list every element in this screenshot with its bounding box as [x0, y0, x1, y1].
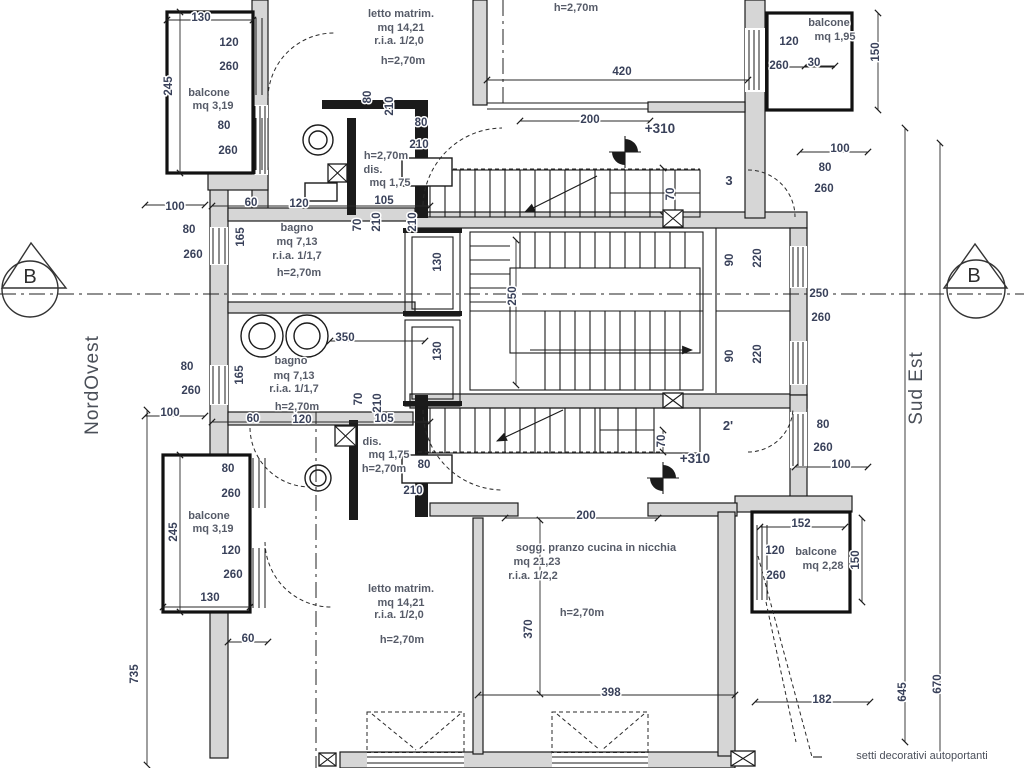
dimension-120: 120	[219, 37, 238, 49]
room-label-balcone-sud-est: mq 2,28	[803, 560, 844, 572]
dimension-420: 420	[612, 66, 631, 78]
room-label-letto-matrim-sud: mq 14,21	[377, 597, 424, 609]
dimension-80: 80	[817, 419, 830, 431]
dimension-260: 260	[223, 569, 242, 581]
floor-plan-drawing: letto matrim.mq 14,21r.i.a. 1/2,0h=2,70m…	[0, 0, 1024, 768]
dimension-260: 260	[221, 488, 240, 500]
paper-background	[0, 0, 1024, 768]
pillar-xbox	[328, 164, 347, 182]
dimension-250: 250	[507, 286, 519, 305]
dimension-260: 260	[813, 442, 832, 454]
dimension-210: 210	[407, 212, 419, 231]
room-label-dis-sud: h=2,70m	[362, 463, 407, 475]
dimension-80: 80	[222, 463, 235, 475]
window-gap	[745, 28, 765, 92]
dimension-120: 120	[221, 545, 240, 557]
dimension-260: 260	[811, 312, 830, 324]
room-label-bagno-nord: bagno	[281, 222, 314, 234]
dimension-100: 100	[830, 143, 849, 155]
room-label-balcone-nord-est: mq 1,95	[815, 31, 856, 43]
dimension-210: 210	[372, 393, 384, 412]
dimension-152: 152	[791, 518, 810, 530]
compass-label-sudest: Sud Est	[906, 351, 927, 425]
dimension-80: 80	[415, 117, 428, 129]
section-letter-b-left: B	[23, 266, 36, 288]
dimension-210: 210	[403, 485, 422, 497]
partition-note: setti decorativi autoportanti	[856, 750, 987, 762]
dimension-105: 105	[374, 195, 394, 207]
dimension-120: 120	[765, 545, 784, 557]
room-label-letto-matrim-nord: r.i.a. 1/2,0	[374, 35, 424, 47]
room-label-bagno-sud: bagno	[275, 355, 308, 367]
dimension-70: 70	[656, 435, 668, 448]
dimension-370: 370	[523, 619, 535, 638]
wall-sogg-right	[718, 512, 735, 756]
dimension-210: 210	[409, 139, 428, 151]
room-label-letto-matrim-sud: h=2,70m	[380, 634, 425, 646]
room-label-balcone-sud-ovest: balcone	[188, 510, 230, 522]
dimension-130: 130	[200, 592, 219, 604]
room-label-balcone-nord-ovest: mq 3,19	[193, 100, 234, 112]
dimension-120: 120	[289, 198, 308, 210]
room-label-soggiorno: sogg. pranzo cucina in nicchia	[516, 542, 677, 554]
dimension-90: 90	[724, 254, 736, 267]
dimension-130: 130	[191, 12, 210, 24]
dimension-245: 245	[163, 76, 175, 96]
room-label-dis-sud: dis.	[363, 436, 382, 448]
dimension-150: 150	[870, 42, 882, 61]
dimension-250: 250	[809, 288, 828, 300]
room-label-dis-nord: dis.	[364, 164, 383, 176]
wall-stairhall-south	[410, 394, 807, 408]
dimension-260: 260	[181, 385, 200, 397]
dimension-60: 60	[242, 633, 255, 645]
dimension-398: 398	[601, 687, 621, 699]
dimension-60: 60	[245, 197, 258, 209]
dimension-120: 120	[779, 36, 798, 48]
dimension-245: 245	[168, 522, 180, 542]
room-label-dis-nord: h=2,70m	[364, 150, 409, 162]
door-tag: 2'	[723, 418, 733, 433]
dimension-80: 80	[183, 224, 196, 236]
dimension-210: 210	[371, 212, 383, 231]
door-tag: 3	[725, 173, 732, 188]
wall-sogg-top-left	[430, 503, 518, 516]
room-label-balcone-nord-est: balcone	[808, 17, 850, 29]
dimension-350: 350	[335, 332, 354, 344]
dimension-165: 165	[235, 227, 247, 247]
dimension-260: 260	[766, 570, 785, 582]
room-label-letto-matrim-sud: r.i.a. 1/2,0	[374, 609, 424, 621]
dimension-100: 100	[831, 459, 850, 471]
room-label-letto-matrim-nord: mq 14,21	[377, 22, 424, 34]
dimension-80: 80	[181, 361, 194, 373]
room-label-soggiorno: mq 21,23	[513, 556, 560, 568]
dimension-70: 70	[352, 219, 364, 232]
dimension-130: 130	[432, 341, 444, 360]
dimension-200: 200	[576, 510, 595, 522]
level-mark: +310	[645, 121, 675, 136]
room-label-balcone-sud-est: balcone	[795, 546, 837, 558]
dimension-220: 220	[752, 248, 764, 267]
dimension-200: 200	[580, 114, 599, 126]
room-label-bagno-nord: h=2,70m	[277, 267, 322, 279]
dimension-260: 260	[219, 61, 238, 73]
room-label-bagno-sud: mq 7,13	[274, 370, 315, 382]
room-label-letto-matrim-sud: letto matrim.	[368, 583, 434, 595]
room-label-dis-nord: mq 1,75	[370, 177, 411, 189]
dimension-80: 80	[819, 162, 832, 174]
pillar-xbox	[663, 393, 683, 408]
room-label-soggiorno: r.i.a. 1/2,2	[508, 570, 558, 582]
room-label-dis-sud: mq 1,75	[369, 449, 410, 461]
wall-top-seg	[648, 102, 745, 112]
wall-right-horizontal	[735, 496, 852, 512]
dimension-80: 80	[218, 120, 231, 132]
dimension-165: 165	[234, 365, 246, 385]
wall-bagno-nord-top	[228, 208, 415, 221]
dimension-100: 100	[165, 201, 184, 213]
wall-bagni-party	[228, 302, 415, 313]
dimension-80: 80	[418, 459, 431, 471]
pillar-xbox	[319, 753, 336, 766]
floor-plan-page: letto matrim.mq 14,21r.i.a. 1/2,0h=2,70m…	[0, 0, 1024, 768]
dimension-30: 30	[808, 57, 821, 69]
dimension-220: 220	[752, 344, 764, 363]
room-label-soggiorno: h=2,70m	[560, 607, 605, 619]
dimension-735: 735	[129, 664, 141, 684]
dimension-670: 670	[932, 674, 944, 693]
dimension-260: 260	[218, 145, 237, 157]
wall-top-mid	[473, 0, 487, 105]
room-label-bagno-nord: mq 7,13	[277, 236, 318, 248]
dimension-70: 70	[665, 188, 677, 201]
dimension-100: 100	[160, 407, 179, 419]
section-letter-b-right: B	[967, 265, 980, 287]
room-label-balcone-nord-ovest: balcone	[188, 87, 230, 99]
wall-letto-sogg	[473, 518, 483, 754]
compass-label-nordovest: NordOvest	[82, 335, 103, 435]
dimension-260: 260	[814, 183, 833, 195]
dimension-150: 150	[850, 550, 862, 569]
room-label-balcone-sud-ovest: mq 3,19	[193, 523, 234, 535]
pillar-xbox	[731, 751, 755, 766]
dimension-105: 105	[374, 413, 394, 425]
room-label-letto-matrim-nord: letto matrim.	[368, 8, 434, 20]
dimension-260: 260	[183, 249, 202, 261]
room-label-letto-matrim-nord: h=2,70m	[381, 55, 426, 67]
dimension-60: 60	[247, 413, 260, 425]
dimension-80: 80	[362, 91, 374, 104]
dimension-645: 645	[897, 682, 909, 702]
dimension-120: 120	[292, 414, 311, 426]
room-label-bagno-nord: r.i.a. 1/1,7	[272, 250, 322, 262]
dimension-90: 90	[724, 350, 736, 363]
pillar-xbox	[663, 210, 683, 227]
dimension-130: 130	[432, 252, 444, 271]
pillar-xbox	[335, 426, 356, 446]
dimension-260: 260	[769, 60, 788, 72]
room-label-stanza-centro-nord: h=2,70m	[554, 2, 599, 14]
room-label-bagno-sud: h=2,70m	[275, 401, 320, 413]
wall-bagno-dis-nord	[347, 118, 356, 215]
dimension-70: 70	[353, 393, 365, 406]
dimension-210: 210	[384, 96, 396, 115]
room-label-bagno-sud: r.i.a. 1/1,7	[269, 383, 319, 395]
level-mark: +310	[680, 451, 710, 466]
bidet-icon	[305, 183, 337, 201]
dimension-182: 182	[812, 694, 831, 706]
